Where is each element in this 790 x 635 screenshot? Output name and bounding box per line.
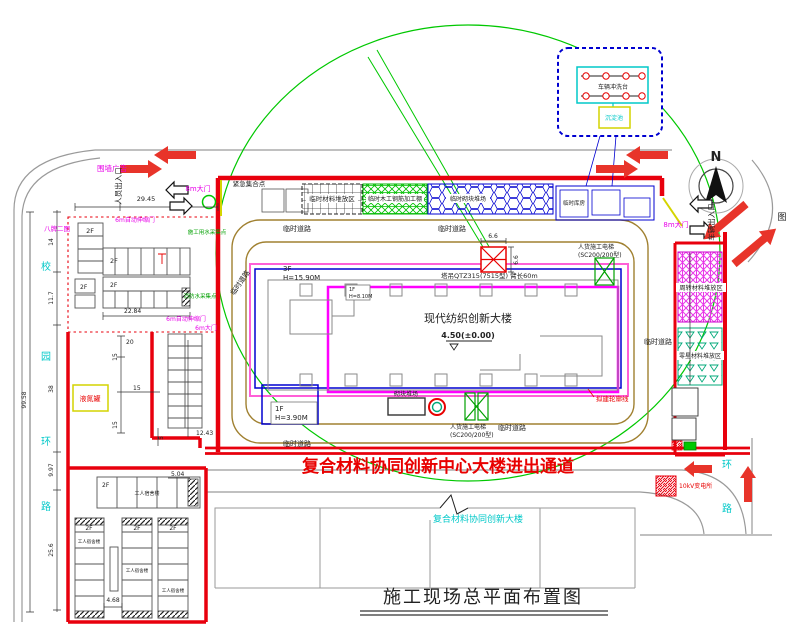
substation-label: 10kV变电所 [679,482,712,490]
f1-label: 1F [275,405,283,413]
temp-road-label: 临时道路 [283,439,311,448]
campus-yuan: 园 [41,351,51,363]
passage-area: 复合材料协同创新中心大楼进出通道 复合材料协同创新大楼 [215,456,635,588]
campus-lu: 路 [41,500,51,513]
eight-boards-label: 八牌二图 [44,224,70,233]
auto-gate-top-label: 6m自动伸缩门 [115,216,155,224]
gate-arrow-icon [170,198,192,214]
turnover-area-label: 周转材料堆放区 [679,284,722,292]
temp-road-label: 临时道路 [438,224,466,233]
temp-road-label: 临时道路 [498,423,526,432]
dim-2284: 22.84 [124,308,141,315]
storage-racks [168,334,202,428]
hoist-top-label2: (SC200/200型) [578,251,622,259]
campus-xiao: 校 [41,260,51,273]
building-elevation: 4.50(±0.00) [441,331,495,340]
f2-c: 2F [80,284,88,291]
flow-arrow-icon [596,160,638,178]
f2-d: 2F [110,282,118,289]
gate8m-right-label: 8m大门 [663,220,688,229]
substation: 10kV变电所 [656,476,712,496]
site-plan-drawing: 临时材料堆放区 临时木工钢筋加工棚 临时砌块堆场 临时库房 紧急集合点 车辆冲洗… [0,0,790,635]
flow-arrow-icon [154,146,196,164]
temp-road-label: 临时道路 [283,224,311,233]
crane-label: 塔吊QTZ315(7515型) 臂长60m [441,271,538,280]
f2-a: 2F [86,227,94,235]
title-text: 施工现场总平面布置图 [383,587,583,608]
nitrogen-tank: 液氮罐 [73,385,108,411]
annex-h-label: H=8.10M [349,294,372,300]
dim-15a: 15 [112,353,119,361]
existing-building-outline [215,508,635,588]
f2-dorm2: 2F [133,525,141,532]
flow-arrow-icon [728,222,782,271]
block-yard-label: 砌块堆场 [394,390,418,398]
water-collect-label: 施工用水采集点 [188,228,227,236]
misc-area-label: 零星材料堆放区 [679,352,721,360]
temp-road-label: 临时道路 [644,337,672,346]
dorm1-label: 工人宿舍楼 [78,538,101,545]
passage-label: 复合材料协同创新中心大楼进出通道 [301,456,574,477]
north-label: N [711,150,722,165]
dim-468: 4.68 [106,597,120,604]
gate8m-left-label: 8m大门 [185,184,210,193]
hoist-bottom-label2: (SC200/200型) [450,431,494,439]
h1-label: H=3.90M [275,414,308,422]
hoist-top-label1: 人货施工电梯 [578,243,614,251]
dim-256: 25.6 [48,543,55,557]
emergency-circle-icon [203,196,216,209]
crane-dim-w: 6.6 [488,233,498,240]
dim-20: 20 [126,339,134,346]
top-facility-strip: 临时材料堆放区 临时木工钢筋加工棚 临时砌块堆场 临时库房 [262,184,654,220]
block-yard: 砌块堆场 [388,390,445,415]
right-compound: 周转材料堆放区 零星材料堆放区 [672,252,726,450]
hoist-bottom: 人货施工电梯 (SC200/200型) [450,393,494,439]
building-name: 现代纺织创新大楼 [424,311,512,325]
wash-platform-label: 车辆冲洗台 [598,83,628,91]
sediment-label: 沉淀池 [605,114,623,122]
flow-arrow-icon [626,146,668,164]
emergency-assembly: 紧急集合点 [203,179,266,209]
flow-arrow-icon [740,466,756,502]
storehouse-label: 临时库房 [563,199,586,207]
fire-water-label: 消防水采集点 [183,292,217,300]
annex-f-label: 1F [349,287,355,293]
dim-9958: 99.58 [21,391,28,408]
ring-huan: 环 [722,460,732,471]
wood-shed-label: 临时木工钢筋加工棚 [368,195,422,203]
emergency-label: 紧急集合点 [233,179,266,188]
dim-117: 11.7 [48,291,55,305]
block-yard-top-label: 临时砌块堆场 [450,195,486,203]
hoist-bottom-label1: 人货施工电梯 [450,423,486,431]
dim-5: 5 [158,436,165,440]
elevation-marker-icon [450,344,458,350]
h3-label: H=15.90M [283,274,320,282]
wash-pit-icon [429,399,445,415]
dim-504: 5.04 [171,471,185,478]
outline-note: 拟建轮廓线 [596,394,629,403]
ring-lu: 路 [722,502,732,515]
f2-dorm3: 2F [169,525,177,532]
worker-dorm-strip: 2F 工人宿舍楼 [97,477,200,508]
campus-huan: 环 [41,437,51,448]
drawing-title: 施工现场总平面布置图 [360,587,608,615]
tower-crane: 6.6 6.6 塔吊QTZ315(7515型) 臂长60m [441,233,538,280]
crane-dim-h: 6.6 [513,255,520,265]
dim-1243: 12.43 [196,430,213,437]
break-mark-icon [440,495,468,514]
worker-dorms: 2F 2F 2F 工人宿舍楼 工人宿舍楼 工人宿舍楼 [75,518,188,618]
dorm-strip-label: 工人宿舍楼 [134,490,159,497]
existing-building-label: 复合材料协同创新大楼 [433,513,523,525]
f2-b: 2F [110,257,118,265]
dim-15b: 15 [133,385,141,392]
dim-15c: 15 [112,421,119,429]
people-entrance-label: 人员出入口 [113,167,123,205]
dim-2945: 29.45 [137,195,156,203]
material-area-label: 临时材料堆放区 [309,194,355,203]
f2-dorm1: 2F [85,525,93,532]
vehicle-entrance-label: 车辆出入口 [706,203,716,241]
construction-site-plan: { "title": "施工现场总平面布置图", "passage_text":… [0,0,790,635]
dim-14: 14 [48,238,55,246]
dim-997: 9.97 [48,463,55,477]
nitrogen-label: 液氮罐 [80,394,101,403]
office-area: 2F 2F 2F 2F [75,223,190,308]
gate6m-label: 6m大门 [195,324,217,332]
dorm3-label: 工人宿舍楼 [162,587,185,594]
f2-strip: 2F [102,482,110,489]
dim-38: 38 [48,385,55,393]
dorm2-label: 工人宿舍楼 [126,567,149,574]
f3-label: 3F [283,265,291,273]
auto-gate-bottom-label: 6m自动伸缩门 [166,315,206,323]
legend-char: 图 [777,212,786,223]
